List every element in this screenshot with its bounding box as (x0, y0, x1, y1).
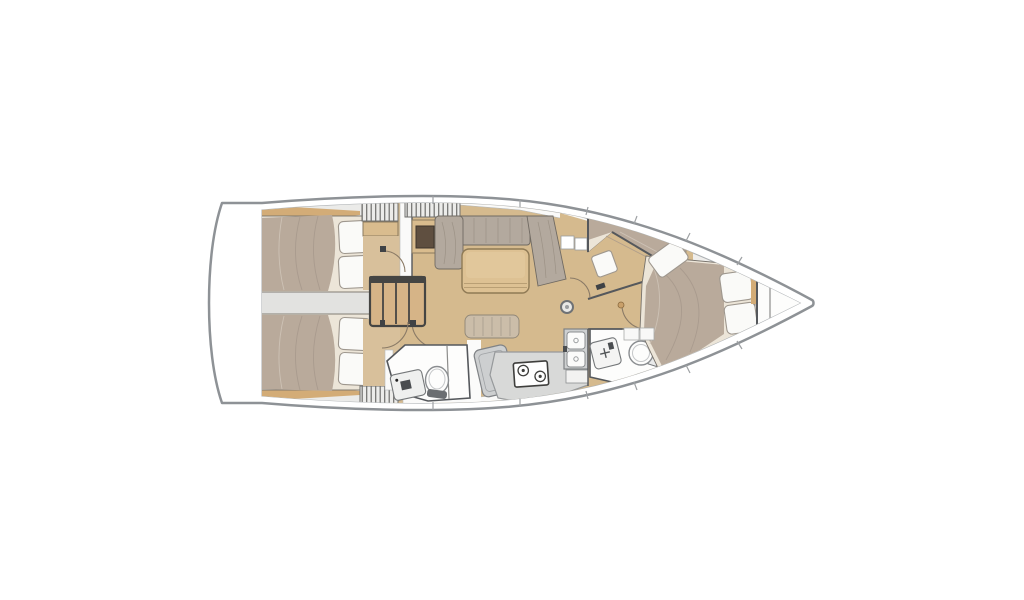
bed-step (640, 328, 654, 340)
aft-heads (387, 345, 470, 401)
toilet (426, 367, 449, 400)
door-handle (410, 320, 416, 327)
aft-cabin-starboard (259, 314, 400, 404)
double-sink (563, 329, 588, 369)
bow-locker (757, 260, 806, 346)
bed-blanket (259, 315, 335, 391)
stove (513, 361, 549, 387)
wardrobe-locker (362, 203, 398, 221)
door-hinge (618, 302, 624, 308)
companionway-stairs (369, 276, 426, 326)
fridge (566, 370, 588, 383)
boat-floor-plan (0, 0, 1024, 600)
settee-arm-aft (435, 216, 463, 269)
shelf-box (561, 236, 574, 249)
shelf-cabinet (363, 222, 398, 236)
bed-step (624, 328, 639, 340)
salon-table (462, 249, 529, 293)
shelf-box (575, 238, 587, 250)
mast-post (561, 301, 573, 313)
door-handle (380, 246, 386, 252)
sink (589, 337, 622, 370)
companionway-lintel (369, 276, 426, 283)
bed-blanket (259, 215, 335, 291)
door-handle (380, 320, 385, 327)
boat-floor-plan-drawing (0, 0, 1024, 600)
cabinet-inset (416, 226, 434, 248)
